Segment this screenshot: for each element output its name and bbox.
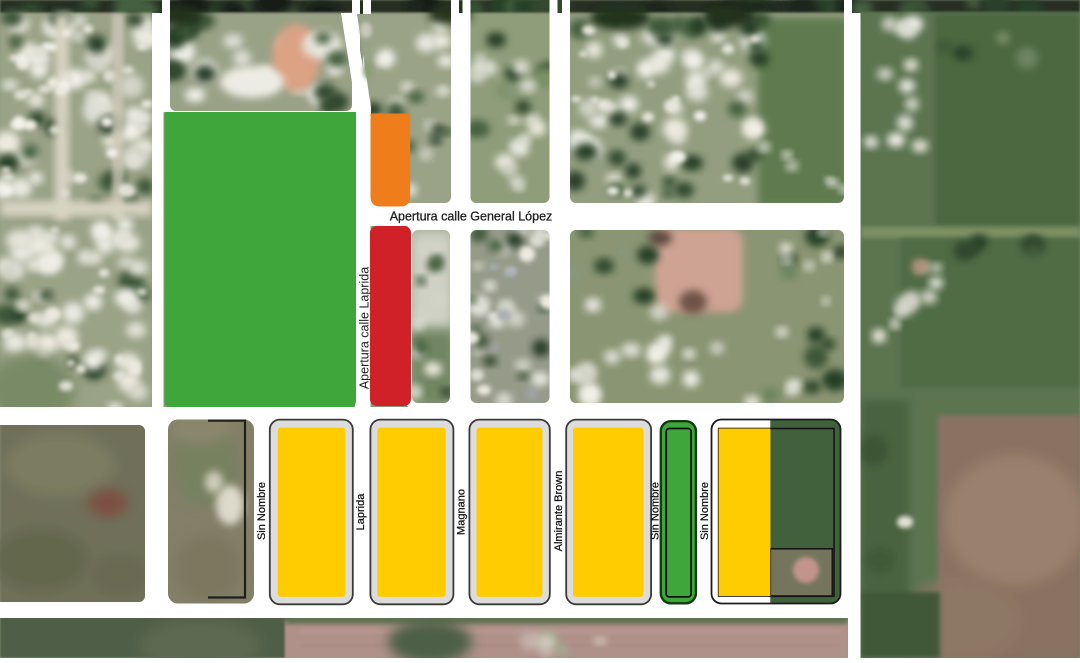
svg-text:Magnano: Magnano xyxy=(456,489,468,535)
svg-text:Sin Nombre: Sin Nombre xyxy=(256,482,268,540)
svg-text:Sin Nombre: Sin Nombre xyxy=(699,482,711,540)
svg-text:Laprida: Laprida xyxy=(355,493,367,531)
svg-text:Apertura calle Laprida: Apertura calle Laprida xyxy=(358,267,372,389)
svg-text:Almirante Brown: Almirante Brown xyxy=(553,471,565,552)
svg-text:Apertura calle General López: Apertura calle General López xyxy=(390,210,553,224)
